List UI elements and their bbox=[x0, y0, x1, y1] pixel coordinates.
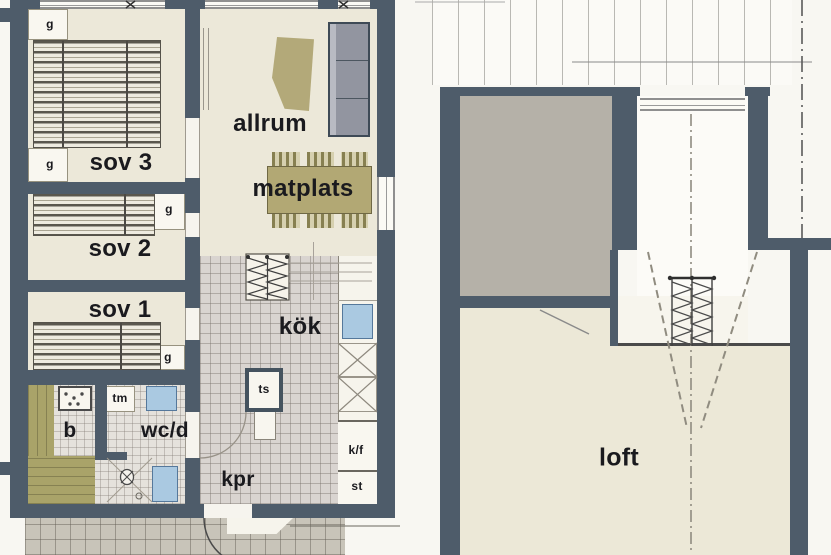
counter-line bbox=[338, 300, 377, 301]
door-opening-sov1 bbox=[185, 308, 200, 340]
loft-landing bbox=[618, 296, 748, 346]
wall-sov2-sov1 bbox=[28, 280, 185, 292]
closet-label: g bbox=[165, 202, 173, 216]
wall-shower-stub bbox=[95, 452, 127, 460]
entrance-door-opening bbox=[204, 504, 252, 518]
wall-mid-seg4 bbox=[185, 340, 200, 412]
chair-gap bbox=[334, 214, 341, 228]
window-allrum-2 bbox=[338, 0, 370, 9]
stairwell-window bbox=[640, 98, 745, 111]
closet-label: g bbox=[46, 157, 54, 171]
closet-label: g bbox=[164, 350, 172, 364]
wall-west bbox=[10, 0, 28, 518]
room-label-loft: loft bbox=[599, 444, 639, 473]
shower-tray bbox=[152, 466, 178, 502]
counter-unit-1 bbox=[338, 343, 377, 377]
sofa-armrest bbox=[330, 24, 336, 135]
counter-unit-2 bbox=[338, 377, 377, 412]
bed-divider bbox=[62, 41, 64, 147]
wall-north-seg1 bbox=[10, 0, 40, 9]
gray-section-south-wall bbox=[447, 296, 618, 308]
door-opening-sov3 bbox=[185, 118, 200, 178]
fixture-label-tm: tm bbox=[112, 391, 127, 405]
wall-bastu-wcd bbox=[95, 385, 107, 458]
floorplan-canvas: g g g g sov 3 sov 2 sov 1 allrum matplat… bbox=[0, 0, 831, 555]
roof-deck-planks bbox=[432, 0, 792, 85]
chair-gap bbox=[334, 152, 341, 166]
room-label-sov3: sov 3 bbox=[90, 149, 153, 177]
room-label-kpr: kpr bbox=[221, 468, 255, 492]
loft-wall-north bbox=[440, 87, 640, 96]
bed-divider bbox=[126, 41, 128, 147]
dining-chairs-top bbox=[272, 152, 368, 166]
bed-divider bbox=[124, 194, 126, 235]
loft-wall-northeast bbox=[748, 238, 831, 250]
wall-sov3-sov2 bbox=[28, 182, 185, 194]
wall-north-seg3 bbox=[318, 0, 338, 9]
bed-divider bbox=[120, 323, 122, 369]
wall-east bbox=[377, 0, 395, 518]
room-label-wcd: wc/d bbox=[141, 419, 189, 443]
room-label-kok: kök bbox=[279, 313, 321, 341]
sauna-heater bbox=[58, 386, 92, 411]
chair-gap bbox=[300, 152, 307, 166]
roof-section-gray bbox=[460, 96, 612, 296]
window-allrum-1 bbox=[205, 0, 318, 9]
fixture-label-kf: k/f bbox=[349, 443, 364, 457]
glass-partition-line bbox=[208, 28, 209, 110]
stairwell-wall-east bbox=[748, 87, 768, 244]
loft-wall-east bbox=[790, 250, 808, 555]
bed-sov3 bbox=[33, 40, 161, 148]
fixture-label-ts: ts bbox=[258, 382, 269, 396]
wall-south bbox=[10, 504, 395, 518]
kitchen-sink bbox=[342, 304, 373, 339]
room-label-matplats: matplats bbox=[252, 175, 353, 203]
wall-stub-nw bbox=[0, 8, 10, 22]
closet-label: g bbox=[46, 17, 54, 31]
bed-sov1 bbox=[33, 322, 161, 370]
bathroom-sink bbox=[146, 386, 177, 411]
fixture-label-st: st bbox=[351, 479, 362, 493]
wall-mid-seg3 bbox=[185, 237, 200, 308]
window-matplats bbox=[377, 177, 395, 230]
room-label-allrum: allrum bbox=[233, 110, 307, 138]
chair-gap bbox=[300, 214, 307, 228]
room-label-bastu: b bbox=[63, 419, 76, 443]
stairwell-wall-west bbox=[612, 87, 637, 250]
window-sov3 bbox=[40, 0, 165, 9]
loft-wall-west bbox=[440, 87, 460, 555]
wall-stub-sw bbox=[0, 462, 10, 475]
terrace bbox=[25, 518, 345, 555]
sofa bbox=[328, 22, 370, 137]
dining-chairs-bottom bbox=[272, 214, 368, 228]
sauna-bench-bottom bbox=[28, 456, 95, 504]
bed-sov2 bbox=[33, 193, 155, 236]
loft-edge-line bbox=[618, 343, 790, 346]
drying-cabinet-duct bbox=[254, 412, 276, 440]
room-label-sov2: sov 2 bbox=[89, 235, 152, 263]
glass-partition-line bbox=[203, 28, 204, 110]
wall-mid-seg1 bbox=[185, 0, 200, 118]
stairwell-floor bbox=[637, 96, 748, 296]
wall-sov1-bath bbox=[18, 370, 185, 385]
loft-floor-west bbox=[460, 308, 612, 555]
room-label-sov1: sov 1 bbox=[89, 296, 152, 324]
wall-mid-seg2 bbox=[185, 178, 200, 213]
stairwell-wall-north-stub bbox=[745, 87, 770, 96]
door-opening-sov2 bbox=[185, 213, 200, 237]
